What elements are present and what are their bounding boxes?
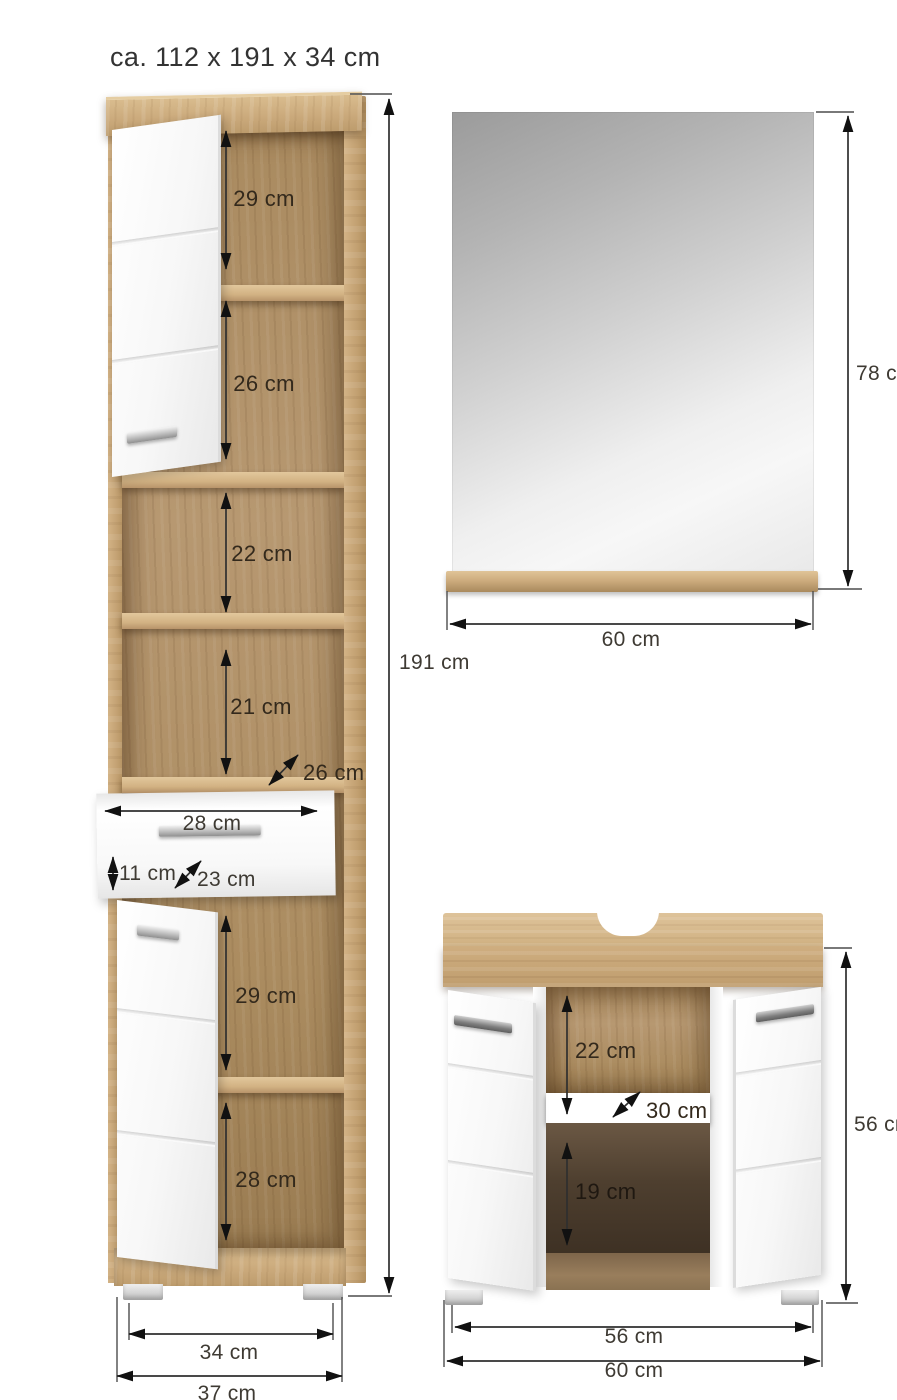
dim-label-vanity-inner-width: 56 cm <box>605 1325 664 1349</box>
dim-label-tall-total-height: 191 cm <box>399 651 470 675</box>
dim-label-drawer-depth: 23 cm <box>197 868 256 892</box>
door-groove <box>736 1157 821 1175</box>
vanity-foot-right <box>781 1290 819 1305</box>
vanity-foot-left <box>445 1290 483 1305</box>
door-groove <box>112 227 218 247</box>
dim-label-vanity-lower-clearance: 19 cm <box>575 1179 636 1205</box>
page-title: ca. 112 x 191 x 34 cm <box>110 42 381 73</box>
vanity-floor <box>546 1253 710 1290</box>
tall-cabinet-foot-left <box>123 1284 163 1300</box>
door-groove <box>117 1008 215 1025</box>
dim-label-drawer-height: 11 cm <box>119 862 176 886</box>
tall-cabinet-shelf-2 <box>122 472 344 488</box>
dim-label-tall-compartment-4: 21 cm <box>230 694 291 720</box>
lower-door-handle <box>137 924 179 940</box>
door-groove <box>117 1130 215 1147</box>
dim-label-vanity-total-width: 60 cm <box>605 1359 664 1383</box>
tall-cabinet-right-panel <box>344 96 366 1283</box>
vanity-right-door <box>733 987 821 1288</box>
dim-label-mirror-width: 60 cm <box>602 628 661 652</box>
dim-label-drawer-width: 28 cm <box>183 812 242 836</box>
vanity-right-door-handle <box>756 1004 814 1023</box>
dim-label-tall-compartment-1: 29 cm <box>233 186 294 212</box>
door-groove <box>448 1063 533 1081</box>
tall-cabinet-foot-right <box>303 1284 343 1300</box>
tall-cabinet-shelf-3 <box>122 613 344 629</box>
dim-label-vanity-upper-clearance: 22 cm <box>575 1038 636 1064</box>
dim-label-vanity-total-height: 56 cm <box>854 1113 897 1137</box>
dim-label-tall-compartment-6: 28 cm <box>235 1167 296 1193</box>
upper-door-handle <box>127 426 177 444</box>
dim-label-tall-base-width: 34 cm <box>200 1341 259 1365</box>
door-groove <box>112 345 218 365</box>
dim-label-vanity-shelf-depth: 30 cm <box>646 1098 707 1124</box>
vanity-top-front <box>443 946 823 987</box>
vanity-left-door-handle <box>454 1015 512 1034</box>
tall-cabinet-upper-door <box>112 115 221 477</box>
dim-label-tall-compartment-2: 26 cm <box>233 371 294 397</box>
mirror-shelf <box>446 571 818 592</box>
door-groove <box>736 1060 821 1078</box>
door-groove <box>448 1160 533 1178</box>
dim-label-mirror-height: 78 cm <box>856 362 897 386</box>
vanity-left-door <box>448 990 536 1291</box>
dim-label-tall-shelf-depth: 26 cm <box>303 760 364 786</box>
dim-label-tall-compartment-3: 22 cm <box>231 541 292 567</box>
dim-label-tall-compartment-5: 29 cm <box>235 983 296 1009</box>
bathroom-furniture-dimension-diagram: ca. 112 x 191 x 34 cm <box>0 0 897 1400</box>
vanity-carcass-right <box>710 987 723 1287</box>
dim-label-tall-total-width: 37 cm <box>198 1382 257 1400</box>
mirror-glass <box>452 112 814 573</box>
tall-cabinet-lower-door <box>117 900 218 1269</box>
